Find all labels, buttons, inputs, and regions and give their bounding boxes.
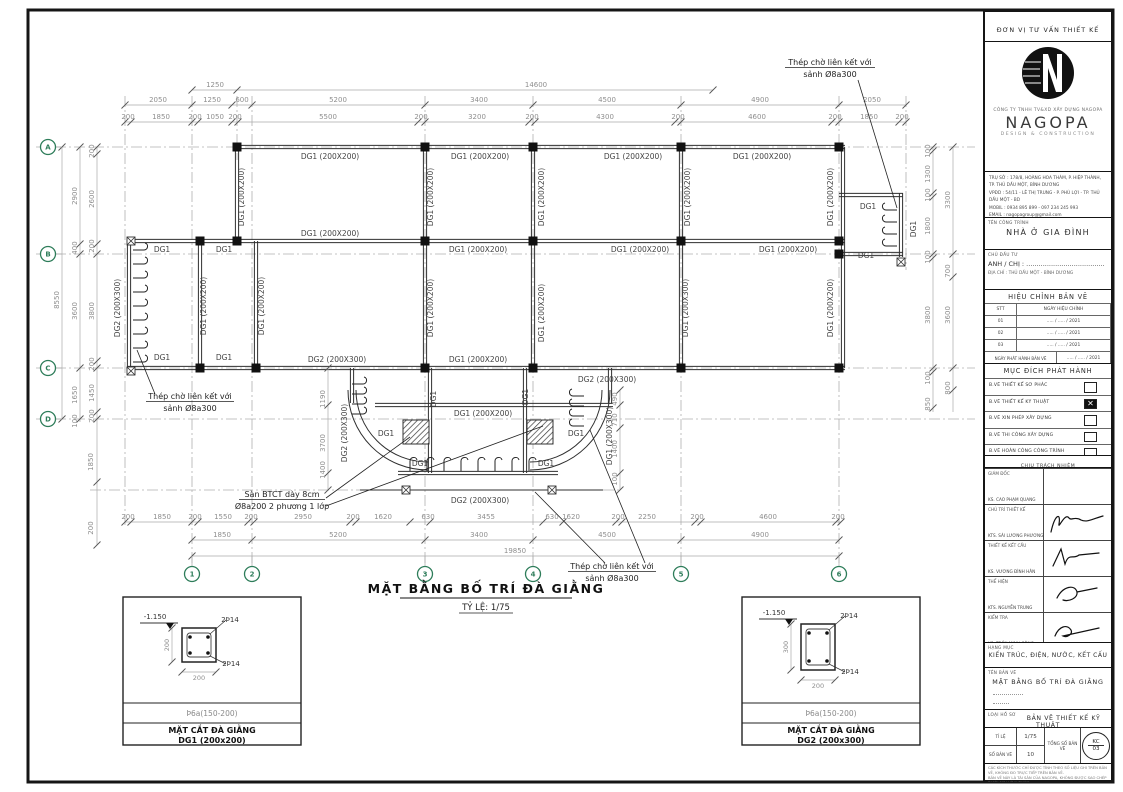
column-mark: [835, 364, 844, 373]
rebar-hook: [569, 409, 584, 416]
column-mark: [196, 237, 205, 246]
dotted-line: [993, 697, 1009, 704]
plan-drawing: 1250146002050125060052003400450049002050…: [0, 0, 1123, 792]
signature-scribble: [1045, 542, 1109, 574]
dim-label: 4600: [748, 113, 766, 121]
beam-label: DG1: [412, 459, 429, 468]
dim-label: 1400: [319, 461, 327, 479]
signer-role: CHỦ TRÌ THIẾT KẾ: [988, 507, 1025, 512]
stirrup-label: Þ6a(150-200): [805, 709, 856, 718]
rebar-dot: [188, 635, 192, 639]
contact-line: MOBIL : 0934 895 899 - 097 234 245 993: [989, 205, 1107, 212]
rebar-hook: [444, 457, 451, 471]
dotted-line: [993, 688, 1023, 695]
brand-name: NAGOPA: [985, 113, 1111, 132]
beam-label: DG1 (200X200): [199, 277, 208, 335]
beam-label: DG1 (200X200): [301, 152, 359, 161]
project-label: TÊN CÔNG TRÌNH: [985, 218, 1111, 225]
dim-label: 630: [421, 513, 434, 521]
sheet-no-value: 10: [1017, 746, 1045, 764]
signer-role: THIẾT KẾ KẾT CẤU: [988, 543, 1026, 548]
contact-line: TP. THỦ DẦU MỘT, BÌNH DƯƠNG: [989, 182, 1107, 189]
beam-label: DG1: [429, 391, 438, 408]
column-mark: [835, 237, 844, 246]
dim-label: 800: [944, 381, 952, 394]
beam-label: DG1 (200X300): [681, 279, 690, 337]
dim-label: 100: [71, 414, 79, 427]
dim-label: 200: [244, 513, 257, 521]
dim-label: 200: [188, 513, 201, 521]
signer-row: THIẾT KẾ KẾT CẤUKS. VƯƠNG ĐÌNH HÂN: [985, 540, 1111, 576]
hatched-column: [403, 420, 429, 444]
dim-label: 1620: [374, 513, 392, 521]
dim-label: 3700: [319, 434, 327, 452]
nagopa-logo: [985, 42, 1111, 104]
divider: [1043, 469, 1044, 504]
sheet-number: 03: [1088, 745, 1104, 752]
category-value: KIẾN TRÚC, ĐIỆN, NƯỚC, KẾT CẤU: [985, 652, 1111, 659]
beam-label: DG1: [378, 429, 395, 438]
dim-label: 200: [690, 513, 703, 521]
drawing-name-value: MẶT BẰNG BỐ TRÍ ĐÀ GIẰNG: [985, 678, 1111, 686]
annotation-text: Sàn BTCT dày 8cm: [244, 490, 319, 499]
rebar-hook: [478, 457, 485, 471]
checkbox-unchecked: [1084, 432, 1097, 443]
doc-type-label: LOẠI HỒ SƠ: [985, 710, 1016, 717]
grid-bubble-label: 1: [190, 571, 195, 579]
beam-label: DG1: [154, 245, 171, 254]
signer-role: KIỂM TRA: [988, 615, 1008, 620]
grid-bubble-label: 6: [837, 571, 842, 579]
column-mark: [233, 143, 242, 152]
purpose-item: B.VẼ XIN PHÉP XÂY DỰNG: [985, 411, 1111, 428]
fine-print-notes: CÁC KÍCH THƯỚC CHỈ ĐƯỢC TÍNH THEO SỐ LIỆ…: [985, 764, 1111, 782]
dim-label: 200: [228, 113, 241, 121]
revision-row-no: 03: [985, 339, 1017, 351]
column-mark: [835, 143, 844, 152]
beam-label: DG1 (200X200): [759, 245, 817, 254]
dim-label: 1250: [203, 96, 221, 104]
signature-scribble: [1045, 614, 1109, 643]
rebar-hook: [882, 215, 897, 222]
beam-label: DG1 (200X300): [605, 407, 614, 465]
dim-label: 2050: [863, 96, 881, 104]
column-mark: [677, 143, 686, 152]
grid-bubble-label: B: [45, 251, 50, 259]
column-mark: [196, 364, 205, 373]
dim-label: 200: [831, 513, 844, 521]
issue-date: ..... / ..... / 2021: [1057, 351, 1111, 364]
dim-label: 200: [828, 113, 841, 121]
beam-label: DG1: [216, 245, 233, 254]
dim-label: 1850: [152, 113, 170, 121]
beam-label: DG1 (200X200): [733, 152, 791, 161]
dim-label: 5500: [319, 113, 337, 121]
beam-label: DG1 (200X200): [826, 168, 835, 226]
signer-row: KIỂM TRAKS. TRẦN MINH CÔNG: [985, 612, 1111, 643]
signer-name: KTS. SÁI LƯƠNG PHƯƠNG: [988, 533, 1043, 538]
dim-label: 200: [525, 113, 538, 121]
beam-label: DG1: [858, 251, 875, 260]
beam-label: DG1 (200X200): [426, 168, 435, 226]
contact-line: TRỤ SỞ : 178/8, HOÀNG HOA THÁM, P. HIỆP …: [989, 175, 1107, 182]
dim-label: 1300: [924, 165, 932, 183]
dim-label: 4600: [759, 513, 777, 521]
hatched-column: [527, 420, 553, 444]
divider: [1043, 613, 1044, 643]
rebar-dot: [825, 631, 829, 635]
signature-table: GIÁM ĐỐCKS. CAO PHẠM QUANGCHỦ TRÌ THIẾT …: [985, 468, 1111, 643]
annotation-text: sảnh Ø8a300: [803, 69, 856, 79]
dim-label: 200: [346, 513, 359, 521]
leader-line: [535, 492, 605, 563]
dim-label: 100: [924, 188, 932, 201]
dim-label: 1850: [153, 513, 171, 521]
purpose-list: B.VẼ THIẾT KẾ SƠ PHÁCB.VẼ THIẾT KẾ KỸ TH…: [985, 378, 1111, 456]
checkbox-unchecked: [1084, 415, 1097, 426]
purpose-item: B.VẼ HOÀN CÔNG CÔNG TRÌNH: [985, 444, 1111, 456]
divider: [1043, 577, 1044, 612]
dim-label: 400: [71, 241, 79, 254]
beam-label: DG1 (200X200): [301, 229, 359, 238]
dim-label: 1250: [206, 81, 224, 89]
rebar-label: 2Þ14: [221, 616, 239, 624]
dim-label: 4900: [751, 531, 769, 539]
revision-col2: NGÀY HIỆU CHỈNH: [1017, 303, 1111, 315]
issue-label: NGÀY PHÁT HÀNH BẢN VẼ: [985, 351, 1057, 364]
drawing-name-label: TÊN BẢN VẼ: [985, 668, 1111, 675]
dim-label: 2900: [71, 187, 79, 205]
scale-label: TỈ LỆ: [985, 728, 1017, 746]
dim-label: 1550: [214, 513, 232, 521]
rebar-hook: [133, 327, 148, 334]
client-name: ANH / CHỊ : ............................…: [985, 257, 1111, 268]
purpose-item: B.VẼ THIẾT KẾ SƠ PHÁC: [985, 378, 1111, 395]
dim-label: 5200: [329, 531, 347, 539]
beam-label: DG2 (200X300): [308, 355, 366, 364]
level-label: -1.150: [144, 613, 167, 621]
note-line: BẢN VẼ NÀY LÀ TÀI SẢN CỦA NAGOPA, KHÔNG …: [988, 776, 1108, 782]
rebar-label: 2Þ14: [840, 612, 858, 620]
dim-label: 200: [611, 513, 624, 521]
dim-label: 200: [87, 521, 95, 534]
column-mark: [529, 237, 538, 246]
grid-bubble-label: 3: [423, 571, 428, 579]
dim-label: 1850: [87, 453, 95, 471]
beam-label: DG1 (200X200): [426, 279, 435, 337]
detail-subtitle: DG1 (200x200): [178, 736, 245, 745]
rebar-hook: [352, 377, 367, 384]
beam-label: DG2 (200X300): [451, 496, 509, 505]
grid-bubble-label: 4: [531, 571, 536, 579]
annotation-text: Thép chờ liên kết với: [787, 57, 871, 67]
column-mark: [835, 250, 844, 259]
rebar-hook: [569, 399, 584, 406]
detail-dim: 200: [812, 682, 824, 690]
dim-label: 3200: [468, 113, 486, 121]
total-sheets-label: TỔNG SỐ BẢN VẼ: [1045, 728, 1081, 764]
column-mark: [421, 237, 430, 246]
signature-scribble: [1045, 506, 1109, 538]
signer-role: GIÁM ĐỐC: [988, 471, 1010, 476]
dim-label: 2250: [638, 513, 656, 521]
grid-bubble-label: 5: [679, 571, 684, 579]
rebar-dot: [206, 635, 210, 639]
dim-label: 14600: [525, 81, 547, 89]
annotation-text: Thép chờ liên kết với: [147, 391, 231, 401]
signer-name: KS. VƯƠNG ĐÌNH HÂN: [988, 569, 1035, 574]
dim-label: 200: [895, 113, 908, 121]
sheet-no-label: SỐ BẢN VẼ: [985, 746, 1017, 764]
purpose-item: B.VẼ THIẾT KẾ KỸ THUẬT✕: [985, 395, 1111, 412]
dim-label: 700: [944, 264, 952, 277]
client-address: ĐỊA CHỈ : THỦ DẦU MỘT - BÌNH DƯƠNG: [985, 268, 1111, 276]
purpose-title: MỤC ĐÍCH PHÁT HÀNH: [985, 364, 1111, 378]
rebar-hook: [882, 203, 897, 210]
signer-row: GIÁM ĐỐCKS. CAO PHẠM QUANG: [985, 468, 1111, 504]
dim-label: 1800: [924, 217, 932, 235]
beam-label: DG1 (200X200): [451, 152, 509, 161]
dim-label: 3400: [470, 531, 488, 539]
revision-row-no: 01: [985, 315, 1017, 327]
purpose-item-label: B.VẼ HOÀN CÔNG CÔNG TRÌNH: [989, 449, 1064, 454]
grid-bubble-label: A: [45, 144, 51, 152]
revision-table: STT NGÀY HIỆU CHỈNH 01 ..... / ..... / 2…: [985, 303, 1111, 351]
dim-label: 2950: [294, 513, 312, 521]
dim-label: 3800: [88, 302, 96, 320]
revision-row-no: 02: [985, 327, 1017, 339]
annotation-text: sảnh Ø8a300: [163, 403, 216, 413]
contact-line: VPĐD : 54/11 - LÊ THỊ TRUNG - P. PHÚ LỢI…: [989, 190, 1107, 205]
grid-bubble-label: C: [45, 365, 50, 373]
dim-label: 4900: [751, 96, 769, 104]
beam-label: DG1 (200X200): [611, 245, 669, 254]
revision-row-date: ..... / ..... / 2021: [1017, 339, 1111, 351]
checkbox-unchecked: [1084, 382, 1097, 393]
drawing-sheet: 1250146002050125060052003400450049002050…: [0, 0, 1123, 792]
column-mark: [421, 143, 430, 152]
rebar-dot: [825, 659, 829, 663]
beam-label: DG2 (200X300): [578, 375, 636, 384]
rebar-dot: [807, 631, 811, 635]
checkbox-checked: ✕: [1084, 399, 1097, 410]
beam-label: DG1 (200X200): [454, 409, 512, 418]
leader-line: [326, 426, 543, 506]
dim-label: 100: [924, 144, 932, 157]
beam-label: DG2 (200X300): [113, 279, 122, 337]
purpose-item-label: B.VẼ THIẾT KẾ SƠ PHÁC: [989, 383, 1047, 388]
column-mark: [233, 237, 242, 246]
dim-label: 200: [88, 409, 96, 422]
rebar-hook: [512, 457, 519, 471]
beam-label: DG1: [538, 459, 555, 468]
purpose-item-label: B.VẼ THIẾT KẾ KỸ THUẬT: [989, 400, 1049, 405]
annotation-text: Thép chờ liên kết với: [569, 561, 653, 571]
stirrup-label: Þ6a(150-200): [186, 709, 237, 718]
dim-label: 1190: [319, 390, 327, 408]
titleblock-header: ĐƠN VỊ TƯ VẤN THIẾT KẾ: [997, 27, 1099, 34]
dim-label: 850: [924, 397, 932, 410]
category-label: HẠNG MỤC: [985, 643, 1111, 650]
beam-label: DG1: [568, 429, 585, 438]
signature-scribble: [1045, 578, 1109, 610]
beam-label: DG1: [216, 353, 233, 362]
scale-table: TỈ LỆ 1/75 TỔNG SỐ BẢN VẼ KC 03 SỐ BẢN V…: [985, 728, 1111, 764]
client-label: CHỦ ĐẦU TƯ: [985, 250, 1111, 257]
rebar-label: 2Þ14: [841, 668, 859, 676]
revision-title: HIỆU CHỈNH BẢN VẼ: [985, 290, 1111, 303]
company-contact: TRỤ SỞ : 178/8, HOÀNG HOA THÁM, P. HIỆP …: [985, 172, 1111, 218]
dim-label: 1650: [71, 386, 79, 404]
divider: [1043, 541, 1044, 576]
rebar-hook: [133, 285, 148, 292]
beam-label: DG1 (200X200): [449, 355, 507, 364]
rebar-hook: [133, 313, 148, 320]
rebar-hook: [461, 457, 468, 471]
detail-dim: 300: [782, 641, 790, 653]
purpose-item-label: B.VẼ THI CÔNG XÂY DỰNG: [989, 433, 1053, 438]
dim-label: 19850: [504, 547, 526, 555]
beam-label: DG1 (200X200): [257, 277, 266, 335]
rebar-hook: [133, 271, 148, 278]
beam-label: DG1 (200X200): [237, 168, 246, 226]
grid-bubble-label: 2: [250, 571, 255, 579]
brand-subtitle: DESIGN & CONSTRUCTION: [985, 132, 1111, 137]
title-block: ĐƠN VỊ TƯ VẤN THIẾT KẾ CÔNG TY TNHH TV&X…: [983, 10, 1113, 782]
dim-label: 200: [121, 513, 134, 521]
dim-label: 4500: [598, 531, 616, 539]
purpose-item-label: B.VẼ XIN PHÉP XÂY DỰNG: [989, 416, 1052, 421]
rebar-hook: [352, 397, 367, 404]
dim-label: 490: [611, 392, 619, 405]
beam-label: DG1: [154, 353, 171, 362]
revision-col1: STT: [985, 303, 1017, 315]
beam-label: DG1: [909, 221, 918, 238]
detail-dim: 200: [163, 639, 171, 651]
dim-label: 5200: [329, 96, 347, 104]
detail-subtitle: DG2 (200x300): [797, 736, 864, 745]
signer-name: KS. CAO PHẠM QUANG: [988, 497, 1036, 502]
grid-bubble-label: D: [45, 416, 51, 424]
beam-label: DG1 (200X200): [449, 245, 507, 254]
beam-label: DG1: [860, 202, 877, 211]
beam-label: DG1 (200X200): [826, 279, 835, 337]
scale-value: 1/75: [1017, 728, 1045, 746]
column-mark: [677, 364, 686, 373]
dim-label: 200: [88, 357, 96, 370]
checkbox-unchecked: [1084, 448, 1097, 456]
beam-label: DG1 (200X200): [683, 168, 692, 226]
dim-label: 3600: [71, 302, 79, 320]
column-mark: [252, 364, 261, 373]
dim-label: 200: [188, 113, 201, 121]
rebar-dot: [206, 651, 210, 655]
dim-label: 3300: [944, 191, 952, 209]
signer-row: CHỦ TRÌ THIẾT KẾKTS. SÁI LƯƠNG PHƯƠNG: [985, 504, 1111, 540]
dim-label: 200: [88, 239, 96, 252]
signer-row: THỂ HIỆNKTS. NGUYỄN TRUNG: [985, 576, 1111, 612]
dim-label: 200: [88, 144, 96, 157]
rebar-hook: [569, 389, 584, 396]
plan-title: MẶT BẰNG BỐ TRÍ ĐÀ GIẰNG: [368, 579, 605, 596]
beam-label: DG1 (200X200): [604, 152, 662, 161]
rebar-dot: [807, 659, 811, 663]
beam-label: DG2 (200X300): [340, 404, 349, 462]
rebar-hook: [133, 257, 148, 264]
dim-label: 4300: [596, 113, 614, 121]
rebar-hook: [569, 419, 584, 426]
revision-row-date: ..... / ..... / 2021: [1017, 315, 1111, 327]
project-name: NHÀ Ở GIA ĐÌNH: [985, 228, 1111, 237]
dim-label: 1050: [206, 113, 224, 121]
dim-label: 1450: [88, 384, 96, 402]
dim-label: 3600: [944, 306, 952, 324]
note-line: CÁC KÍCH THƯỚC CHỈ ĐƯỢC TÍNH THEO SỐ LIỆ…: [988, 766, 1108, 776]
signer-name: KTS. NGUYỄN TRUNG: [988, 605, 1032, 610]
rebar-dot: [188, 651, 192, 655]
dim-label: 1850: [213, 531, 231, 539]
annotation-text: Ø8a200 2 phương 1 lớp: [235, 501, 329, 511]
column-mark: [421, 364, 430, 373]
rebar-hook: [882, 227, 897, 234]
column-mark: [677, 237, 686, 246]
detail-dim: 200: [193, 674, 205, 682]
beam-label: DG1 (200X200): [537, 284, 546, 342]
dim-label: 1620: [562, 513, 580, 521]
beam-label: DG1: [521, 389, 530, 406]
dim-label: 4500: [598, 96, 616, 104]
rebar-hook: [133, 341, 148, 348]
plan-scale: TỶ LỆ: 1/75: [461, 601, 510, 613]
beam-label: DG1 (200X200): [537, 168, 546, 226]
rebar-hook: [882, 239, 897, 246]
purpose-item: B.VẼ THI CÔNG XÂY DỰNG: [985, 428, 1111, 445]
dim-label: 200: [414, 113, 427, 121]
dim-label: 2050: [149, 96, 167, 104]
dim-label: 3400: [470, 96, 488, 104]
dim-label: 200: [121, 113, 134, 121]
dim-label: 200: [671, 113, 684, 121]
dim-label: 100: [924, 371, 932, 384]
dim-label: 8550: [53, 291, 61, 309]
level-label: -1.150: [763, 609, 786, 617]
rebar-hook: [352, 387, 367, 394]
sheet-code-circle: KC 03: [1082, 732, 1110, 760]
rebar-hook: [529, 457, 536, 471]
revision-row-date: ..... / ..... / 2021: [1017, 327, 1111, 339]
dim-label: 600: [235, 96, 248, 104]
column-mark: [529, 143, 538, 152]
dim-label: 3455: [477, 513, 495, 521]
rebar-hook: [495, 457, 502, 471]
column-mark: [529, 364, 538, 373]
rebar-label: 2Þ14: [222, 660, 240, 668]
dim-label: 3800: [924, 306, 932, 324]
dim-label: 2600: [88, 190, 96, 208]
leader-line: [137, 350, 155, 394]
dim-label: 100: [924, 250, 932, 263]
leader-line: [326, 437, 410, 498]
rebar-hook: [133, 299, 148, 306]
signer-role: THỂ HIỆN: [988, 579, 1008, 584]
